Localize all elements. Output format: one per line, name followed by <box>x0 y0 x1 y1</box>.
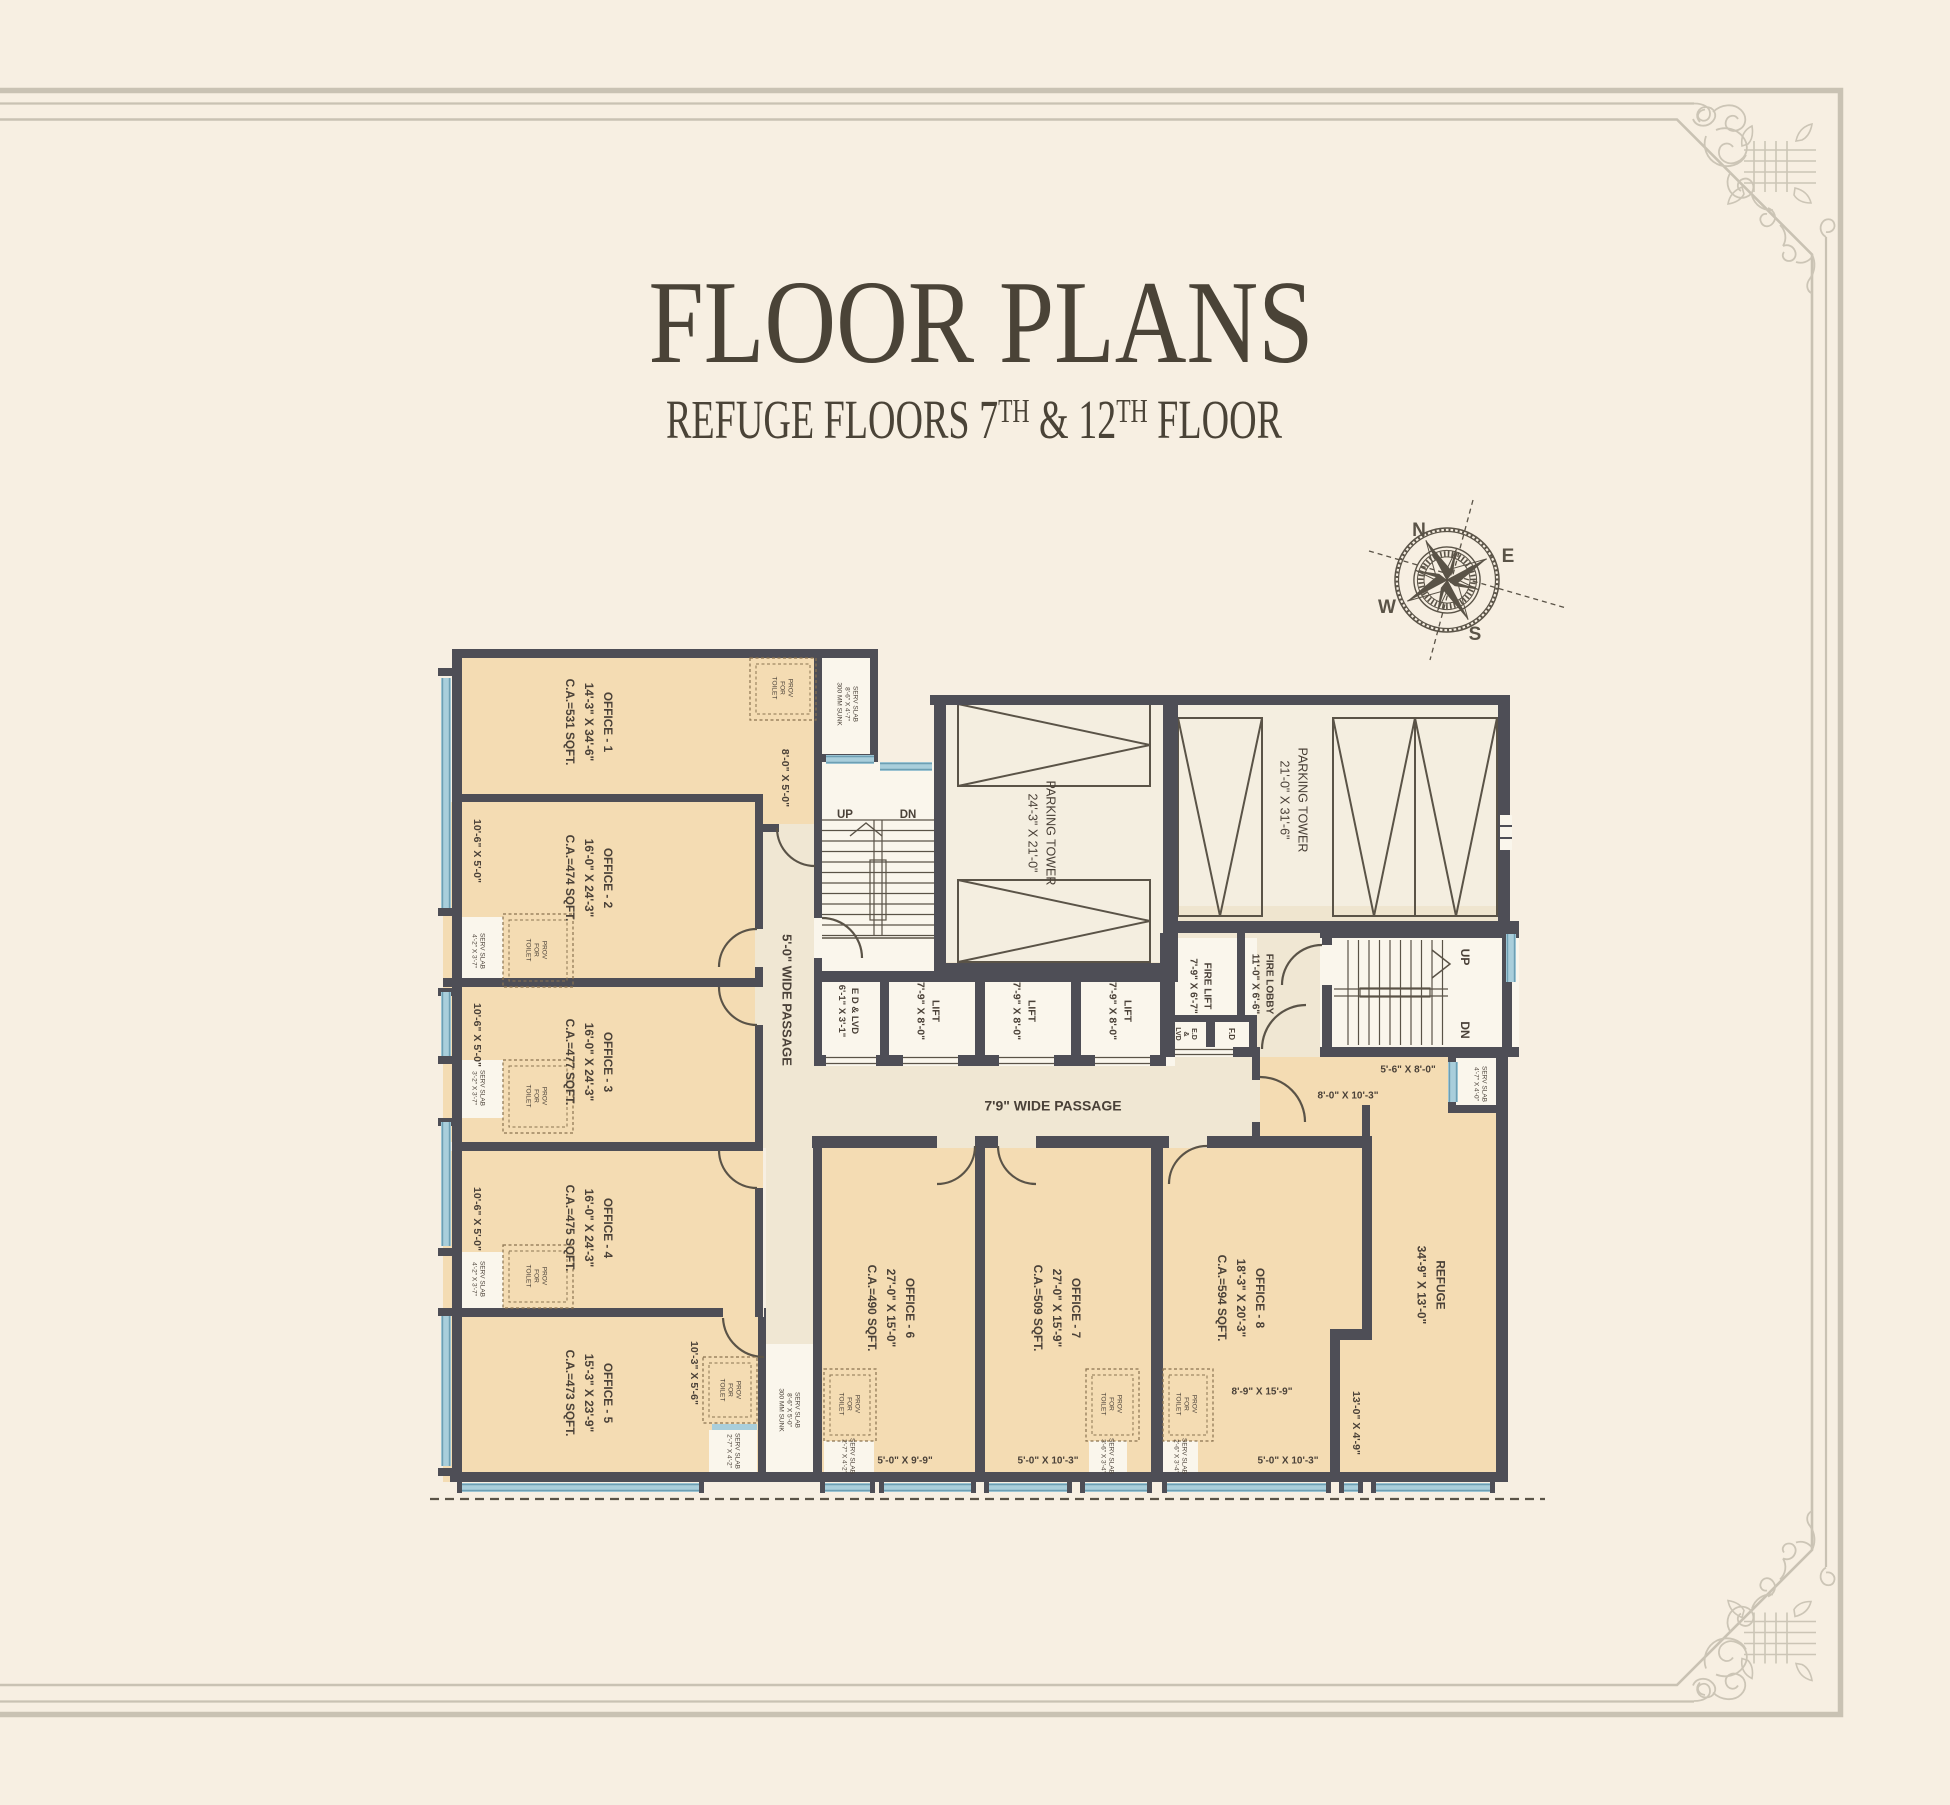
svg-text:FOR: FOR <box>1182 1397 1189 1411</box>
svg-text:REFUGE FLOORS 7TH & 12TH FLOOR: REFUGE FLOORS 7TH & 12TH FLOOR <box>666 389 1282 450</box>
svg-text:TOILET: TOILET <box>1174 1393 1181 1416</box>
svg-text:10'-6" X 5'-0": 10'-6" X 5'-0" <box>471 819 483 883</box>
svg-text:W: W <box>1378 597 1396 618</box>
svg-text:6'-1" X 3'-1": 6'-1" X 3'-1" <box>836 985 847 1038</box>
svg-text:FLOOR PLANS: FLOOR PLANS <box>649 256 1314 388</box>
svg-text:5'-0" WIDE PASSAGE: 5'-0" WIDE PASSAGE <box>780 934 795 1066</box>
svg-text:TOILET: TOILET <box>524 1265 531 1288</box>
svg-text:SERV SLAB: SERV SLAB <box>478 1070 485 1106</box>
svg-text:PROV: PROV <box>853 1395 860 1414</box>
svg-text:15'-3" X 23'-9": 15'-3" X 23'-9" <box>582 1354 596 1432</box>
svg-text:10'-6" X 5'-0": 10'-6" X 5'-0" <box>471 1187 483 1251</box>
svg-text:34'-9" X 13'-0": 34'-9" X 13'-0" <box>1414 1246 1428 1324</box>
svg-text:SERV SLAB: SERV SLAB <box>851 686 858 722</box>
svg-text:C.A.=490 SQFT.: C.A.=490 SQFT. <box>865 1265 879 1352</box>
svg-text:24'-3" X 21'-0": 24'-3" X 21'-0" <box>1026 794 1040 873</box>
svg-text:TOILET: TOILET <box>718 1379 725 1402</box>
svg-text:OFFICE - 2: OFFICE - 2 <box>601 848 615 909</box>
svg-text:PROV: PROV <box>786 679 793 698</box>
svg-text:SERV SLAB: SERV SLAB <box>1480 1066 1487 1102</box>
svg-text:4'-2" X 3'-7": 4'-2" X 3'-7" <box>470 934 477 969</box>
svg-text:LIFT: LIFT <box>930 1000 942 1023</box>
svg-text:8'-6" X 4'-7": 8'-6" X 4'-7" <box>843 687 850 722</box>
svg-text:4'-2" X 3'-7": 4'-2" X 3'-7" <box>470 1262 477 1297</box>
svg-text:FIRE LOBBY: FIRE LOBBY <box>1263 954 1274 1015</box>
svg-text:F.D: F.D <box>1227 1028 1236 1040</box>
svg-text:C.A.=474 SQFT.: C.A.=474 SQFT. <box>563 835 577 922</box>
svg-text:3'-2" X 3'-7": 3'-2" X 3'-7" <box>470 1071 477 1106</box>
svg-text:OFFICE - 3: OFFICE - 3 <box>601 1032 615 1093</box>
svg-text:C.A.=475 SQFT.: C.A.=475 SQFT. <box>563 1185 577 1272</box>
svg-text:8'-6" X 5'-0": 8'-6" X 5'-0" <box>785 1393 792 1428</box>
svg-text:PROV: PROV <box>540 1087 547 1106</box>
svg-text:FOR: FOR <box>845 1397 852 1411</box>
svg-text:7'9" WIDE PASSAGE: 7'9" WIDE PASSAGE <box>984 1098 1121 1114</box>
svg-text:27'-0" X 15'-0": 27'-0" X 15'-0" <box>884 1269 898 1347</box>
svg-text:16'-0" X 24'-3": 16'-0" X 24'-3" <box>582 1023 596 1101</box>
svg-text:C.A.=477 SQFT.: C.A.=477 SQFT. <box>563 1019 577 1106</box>
svg-text:C.A.=531 SQFT.: C.A.=531 SQFT. <box>563 679 577 766</box>
svg-text:7'-9" X 8'-0": 7'-9" X 8'-0" <box>915 982 927 1040</box>
svg-text:5'-0" X 9'-9": 5'-0" X 9'-9" <box>877 1456 933 1467</box>
svg-text:LVD: LVD <box>1174 1027 1181 1040</box>
svg-text:S: S <box>1469 624 1482 645</box>
svg-text:5'-0" X 10'-3": 5'-0" X 10'-3" <box>1018 1456 1079 1467</box>
svg-text:REFUGE: REFUGE <box>1433 1260 1447 1309</box>
svg-text:TOILET: TOILET <box>1099 1393 1106 1416</box>
svg-text:16'-0" X 24'-3": 16'-0" X 24'-3" <box>582 1189 596 1267</box>
svg-text:SERV SLAB: SERV SLAB <box>478 933 485 969</box>
svg-text:PROV: PROV <box>734 1381 741 1400</box>
svg-text:SERV SLAB: SERV SLAB <box>793 1392 800 1428</box>
svg-text:5'-6" X 8'-0": 5'-6" X 8'-0" <box>1380 1065 1436 1076</box>
svg-text:FOR: FOR <box>532 943 539 957</box>
svg-text:C.A.=509 SQFT.: C.A.=509 SQFT. <box>1031 1265 1045 1352</box>
svg-text:FOR: FOR <box>726 1383 733 1397</box>
svg-text:C.A.=594 SQFT.: C.A.=594 SQFT. <box>1215 1255 1229 1342</box>
svg-text:FOR: FOR <box>532 1269 539 1283</box>
svg-text:SERV SLAB: SERV SLAB <box>478 1261 485 1297</box>
svg-text:&: & <box>1182 1031 1189 1036</box>
svg-text:FOR: FOR <box>532 1089 539 1103</box>
svg-text:TOILET: TOILET <box>524 1085 531 1108</box>
svg-text:300 MM SUNK: 300 MM SUNK <box>777 1388 784 1432</box>
svg-text:PROV: PROV <box>1190 1395 1197 1414</box>
svg-text:8'-9" X 15'-9": 8'-9" X 15'-9" <box>1232 1387 1293 1398</box>
svg-text:8'-0" X 5'-0": 8'-0" X 5'-0" <box>779 749 791 807</box>
svg-text:SERV SLAB: SERV SLAB <box>733 1433 740 1469</box>
svg-text:TOILET: TOILET <box>524 939 531 962</box>
svg-text:UP: UP <box>837 809 853 821</box>
svg-text:11'-0" X 6'-6": 11'-0" X 6'-6" <box>1249 954 1260 1015</box>
svg-text:TOILET: TOILET <box>770 677 777 700</box>
svg-text:FOR: FOR <box>1107 1397 1114 1411</box>
svg-text:OFFICE - 5: OFFICE - 5 <box>601 1363 615 1424</box>
svg-text:SERV SLAB: SERV SLAB <box>1180 1438 1187 1474</box>
svg-text:LIFT: LIFT <box>1026 1000 1038 1023</box>
svg-text:7'-9" X 8'-0": 7'-9" X 8'-0" <box>1011 982 1023 1040</box>
svg-text:N: N <box>1412 520 1426 541</box>
svg-text:E: E <box>1502 546 1515 567</box>
svg-text:SERV SLAB: SERV SLAB <box>848 1438 855 1474</box>
svg-text:DN: DN <box>1458 1021 1472 1038</box>
svg-text:TOILET: TOILET <box>837 1393 844 1416</box>
svg-text:10'-3" X 5'-6": 10'-3" X 5'-6" <box>688 1341 700 1405</box>
svg-text:PARKING TOWER: PARKING TOWER <box>1296 748 1310 853</box>
svg-text:PROV: PROV <box>540 941 547 960</box>
svg-text:FOR: FOR <box>778 681 785 695</box>
svg-text:10'-6" X 5'-0": 10'-6" X 5'-0" <box>471 1003 483 1067</box>
svg-text:7'-9" X 6'-7": 7'-9" X 6'-7" <box>1187 958 1198 1014</box>
svg-text:PARKING TOWER: PARKING TOWER <box>1044 781 1058 886</box>
svg-text:PROV: PROV <box>540 1267 547 1286</box>
svg-text:E.D: E.D <box>1190 1028 1197 1040</box>
svg-text:18'-3" X 20'-3": 18'-3" X 20'-3" <box>1234 1259 1248 1337</box>
svg-text:OFFICE - 8: OFFICE - 8 <box>1253 1268 1267 1329</box>
svg-text:LIFT: LIFT <box>1122 1000 1134 1023</box>
svg-text:E D & LVD: E D & LVD <box>849 988 860 1034</box>
svg-text:13'-0" X 4'-9": 13'-0" X 4'-9" <box>1350 1391 1362 1455</box>
svg-text:16'-0" X 24'-3": 16'-0" X 24'-3" <box>582 839 596 917</box>
svg-text:C.A.=473 SQFT.: C.A.=473 SQFT. <box>563 1350 577 1437</box>
svg-text:2'-7" X 4'-2": 2'-7" X 4'-2" <box>840 1439 847 1474</box>
svg-text:2'-7" X 4'-2": 2'-7" X 4'-2" <box>725 1434 732 1469</box>
svg-text:OFFICE - 7: OFFICE - 7 <box>1069 1278 1083 1339</box>
svg-text:3'-6" X 3'-4": 3'-6" X 3'-4" <box>1099 1439 1106 1474</box>
svg-text:PROV: PROV <box>1115 1395 1122 1414</box>
svg-text:UP: UP <box>1458 949 1472 966</box>
svg-text:21'-0" X 31'-6": 21'-0" X 31'-6" <box>1278 761 1292 840</box>
svg-text:27'-0" X 15'-9": 27'-0" X 15'-9" <box>1050 1269 1064 1347</box>
svg-text:4'-7" X 4'-0": 4'-7" X 4'-0" <box>1472 1067 1479 1102</box>
svg-text:2'-6" X 3'-4": 2'-6" X 3'-4" <box>1172 1439 1179 1474</box>
svg-text:7'-9" X 8'-0": 7'-9" X 8'-0" <box>1107 982 1119 1040</box>
svg-text:FIRE LIFT: FIRE LIFT <box>1201 963 1212 1010</box>
svg-text:OFFICE - 1: OFFICE - 1 <box>601 692 615 753</box>
svg-text:DN: DN <box>900 809 917 821</box>
svg-text:OFFICE - 6: OFFICE - 6 <box>903 1278 917 1339</box>
svg-text:OFFICE - 4: OFFICE - 4 <box>601 1198 615 1259</box>
svg-text:14'-3" X 34'-6": 14'-3" X 34'-6" <box>582 683 596 761</box>
svg-text:5'-0" X 10'-3": 5'-0" X 10'-3" <box>1258 1456 1319 1467</box>
svg-text:8'-0" X 10'-3": 8'-0" X 10'-3" <box>1318 1091 1379 1102</box>
svg-text:SERV SLAB: SERV SLAB <box>1107 1438 1114 1474</box>
svg-text:300 MM SUNK: 300 MM SUNK <box>835 682 842 726</box>
